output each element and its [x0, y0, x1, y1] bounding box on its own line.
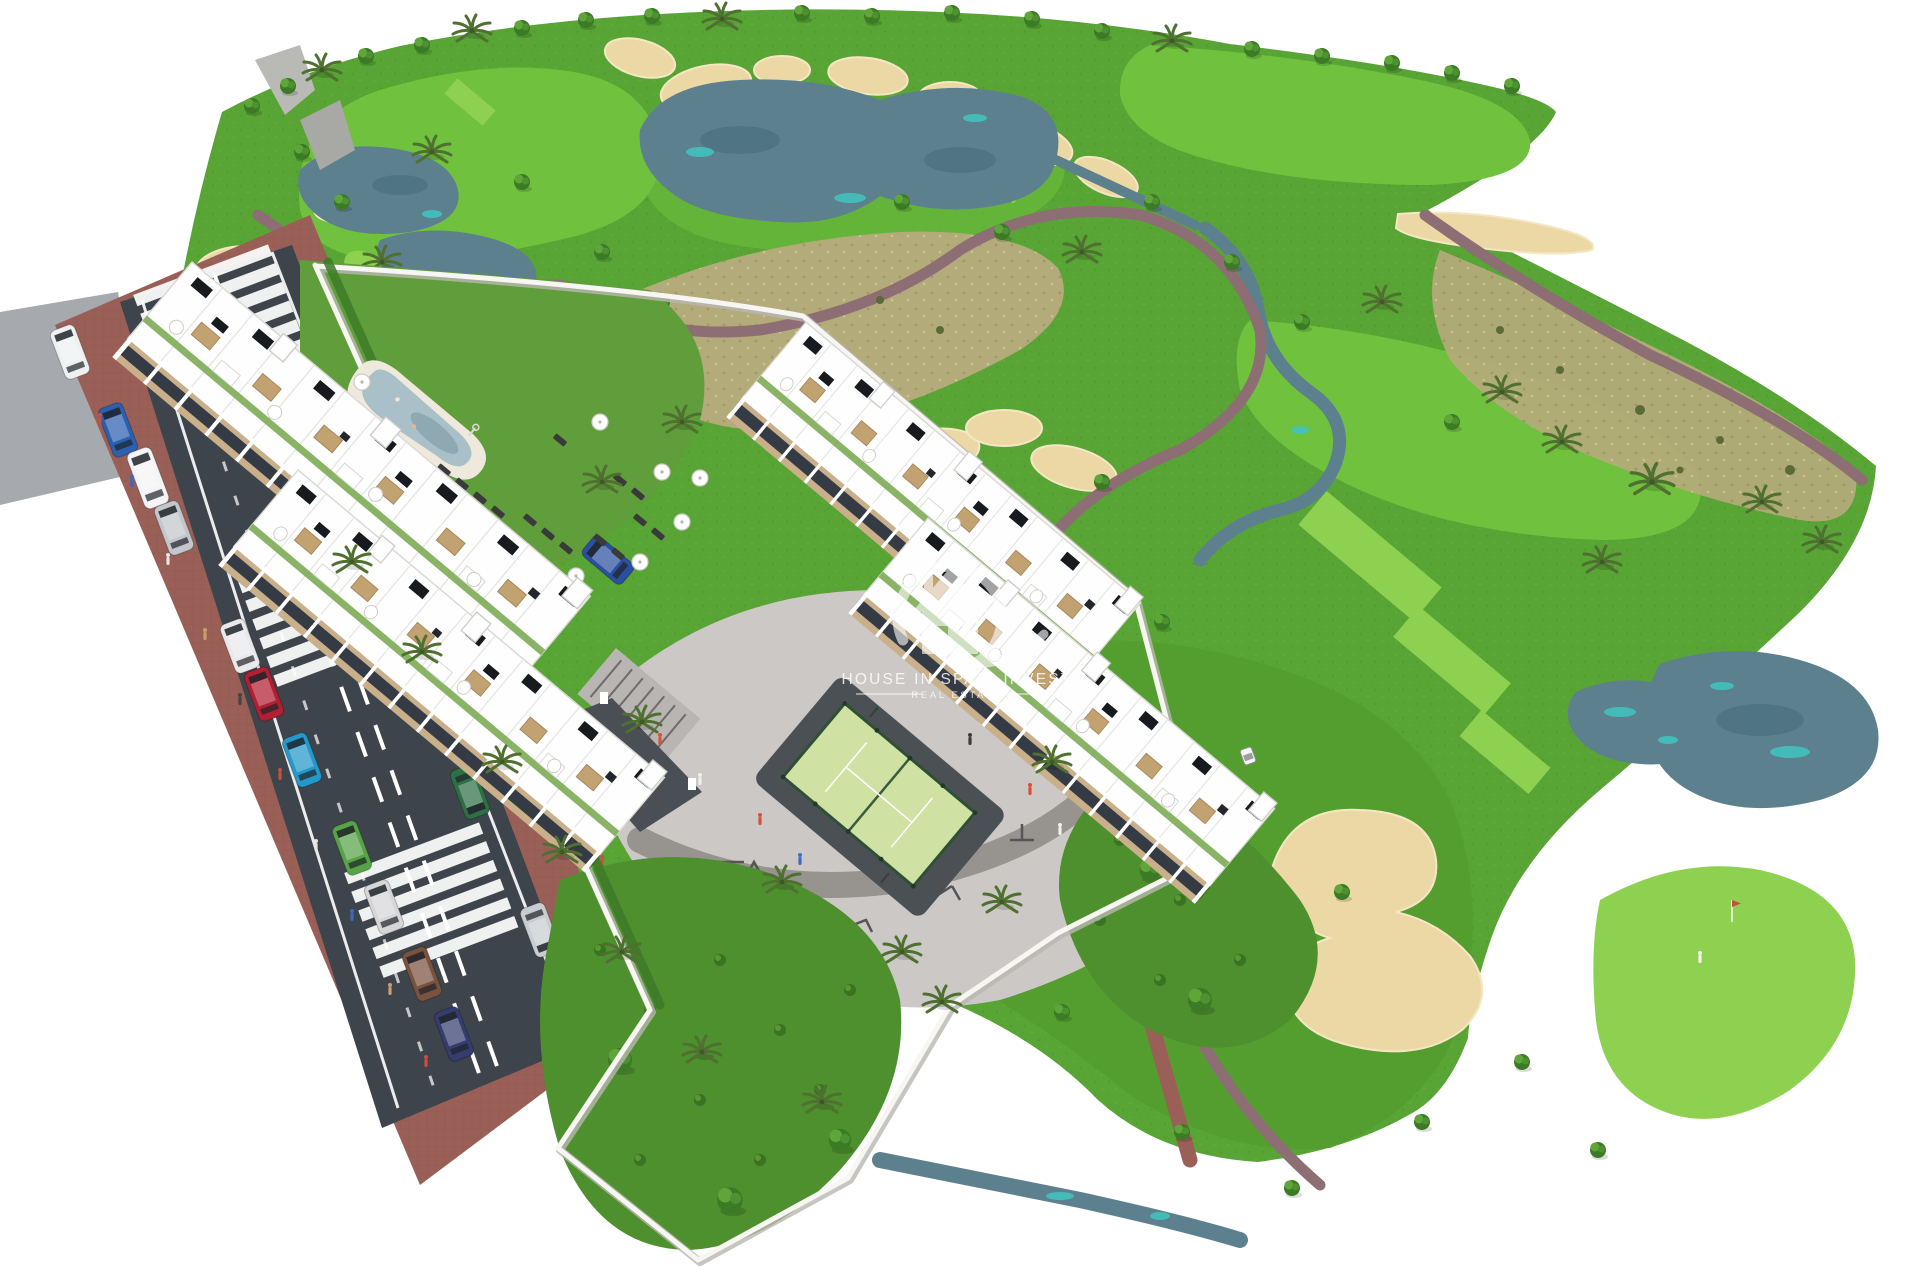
golfer: [1698, 951, 1702, 963]
watermark-title: HOUSE IN SPAIN INVEST: [841, 671, 1072, 688]
aerial-render: HOUSE IN SPAIN INVEST REAL ESTATE: [0, 0, 1920, 1280]
watermark-subtitle: REAL ESTATE: [911, 690, 1002, 701]
render-canvas: HOUSE IN SPAIN INVEST REAL ESTATE: [0, 0, 1920, 1280]
putting-green-large: [1593, 866, 1855, 1119]
